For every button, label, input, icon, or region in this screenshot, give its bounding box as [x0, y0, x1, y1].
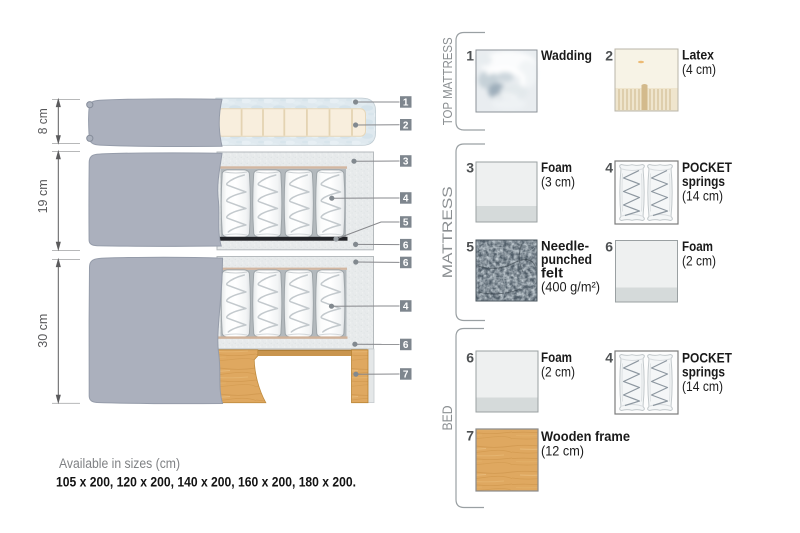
svg-text:springs: springs: [682, 173, 725, 189]
svg-text:(2 cm): (2 cm): [682, 254, 716, 269]
svg-text:Foam: Foam: [541, 349, 572, 365]
svg-text:Foam: Foam: [682, 238, 713, 254]
svg-text:3: 3: [403, 157, 409, 168]
svg-text:(12 cm): (12 cm): [541, 444, 584, 459]
svg-text:19 cm: 19 cm: [36, 179, 50, 213]
svg-text:5: 5: [466, 239, 474, 255]
svg-text:6: 6: [605, 239, 613, 255]
svg-text:6: 6: [403, 340, 409, 351]
svg-text:Latex: Latex: [682, 47, 714, 63]
svg-text:7: 7: [466, 428, 474, 444]
svg-text:2: 2: [605, 48, 613, 64]
svg-text:(14 cm): (14 cm): [682, 189, 723, 204]
svg-text:4: 4: [605, 160, 613, 176]
svg-text:1: 1: [403, 98, 409, 109]
svg-text:6: 6: [466, 350, 474, 366]
svg-text:6: 6: [403, 258, 409, 269]
svg-text:30 cm: 30 cm: [36, 314, 50, 348]
svg-text:4: 4: [403, 194, 409, 205]
svg-text:4: 4: [403, 302, 409, 313]
svg-text:(2 cm): (2 cm): [541, 365, 575, 380]
svg-text:Foam: Foam: [541, 159, 572, 175]
svg-text:105 x 200, 120 x 200, 140 x 20: 105 x 200, 120 x 200, 140 x 200, 160 x 2…: [56, 475, 356, 490]
svg-text:Wooden frame: Wooden frame: [541, 428, 630, 444]
svg-text:(3 cm): (3 cm): [541, 175, 575, 190]
svg-text:springs: springs: [682, 364, 725, 380]
svg-text:6: 6: [403, 240, 409, 251]
svg-text:TOP MATTRESS: TOP MATTRESS: [440, 37, 455, 125]
svg-text:1: 1: [466, 48, 474, 64]
svg-text:5: 5: [403, 218, 409, 229]
svg-text:(400 g/m²): (400 g/m²): [541, 280, 600, 295]
svg-text:8 cm: 8 cm: [36, 108, 50, 134]
svg-text:Wadding: Wadding: [541, 47, 592, 63]
svg-text:(4 cm): (4 cm): [682, 62, 716, 77]
svg-text:BED: BED: [439, 406, 455, 431]
svg-text:Available in sizes (cm): Available in sizes (cm): [59, 456, 180, 471]
svg-text:2: 2: [403, 121, 409, 132]
svg-text:(14 cm): (14 cm): [682, 379, 723, 394]
svg-text:3: 3: [466, 160, 474, 176]
svg-text:MATTRESS: MATTRESS: [439, 186, 455, 278]
svg-text:4: 4: [605, 350, 613, 366]
svg-text:felt: felt: [541, 265, 563, 281]
svg-text:7: 7: [403, 370, 409, 381]
